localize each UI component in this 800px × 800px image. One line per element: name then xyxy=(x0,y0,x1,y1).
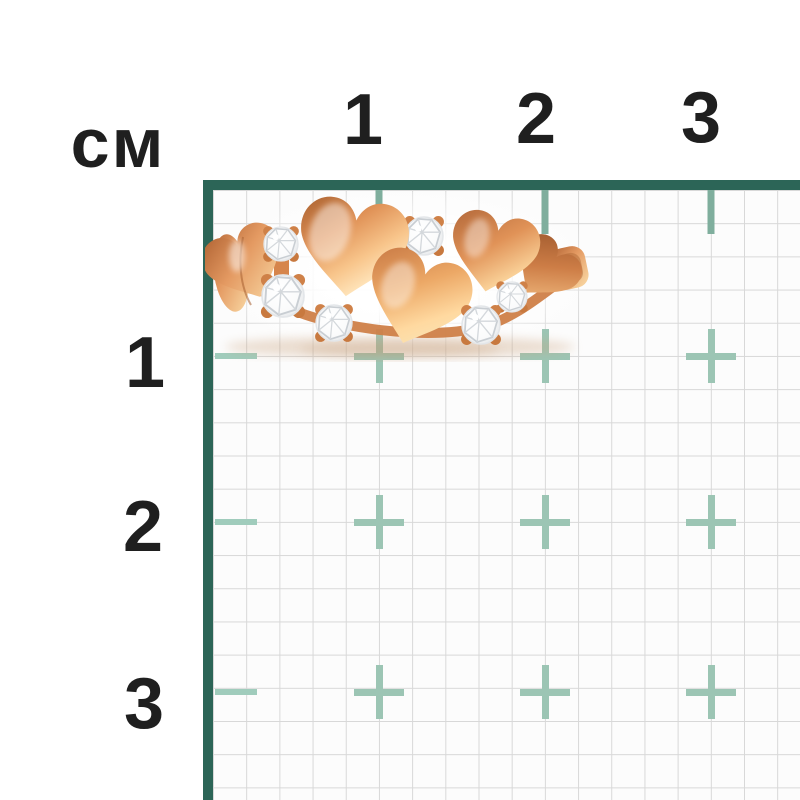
ruler-frame-top xyxy=(203,180,800,190)
ring-photo xyxy=(205,192,600,362)
crystal-gem-top-left xyxy=(263,226,299,262)
top-axis-label-3: 3 xyxy=(681,82,721,154)
left-axis-label-2: 2 xyxy=(123,491,163,563)
top-axis-label-1: 1 xyxy=(343,84,383,156)
left-axis-label-3: 3 xyxy=(124,668,164,740)
crystal-gem-bottom-left xyxy=(315,304,353,342)
measurement-photo-scene: см 1 2 3 1 2 3 xyxy=(0,0,800,800)
specular-highlight xyxy=(229,240,245,272)
cm-tick-left-2 xyxy=(215,519,257,525)
cm-tick-top-3 xyxy=(708,190,715,234)
unit-label-cm: см xyxy=(71,108,166,178)
crosshair-1-3 xyxy=(354,667,404,717)
crosshair-3-2 xyxy=(686,497,736,547)
crystal-gem-right xyxy=(496,281,528,313)
crosshair-3-1 xyxy=(686,331,736,381)
ring-shadow-core xyxy=(300,342,500,356)
crosshair-3-3 xyxy=(686,667,736,717)
crosshair-2-2 xyxy=(520,497,570,547)
crosshair-2-3 xyxy=(520,667,570,717)
crystal-gem-bottom-right xyxy=(461,305,501,345)
left-axis-label-1: 1 xyxy=(125,327,165,399)
cm-tick-left-3 xyxy=(215,689,257,695)
crosshair-1-2 xyxy=(354,497,404,547)
top-axis-label-2: 2 xyxy=(516,83,556,155)
crystal-gem-mid-left xyxy=(261,274,305,318)
